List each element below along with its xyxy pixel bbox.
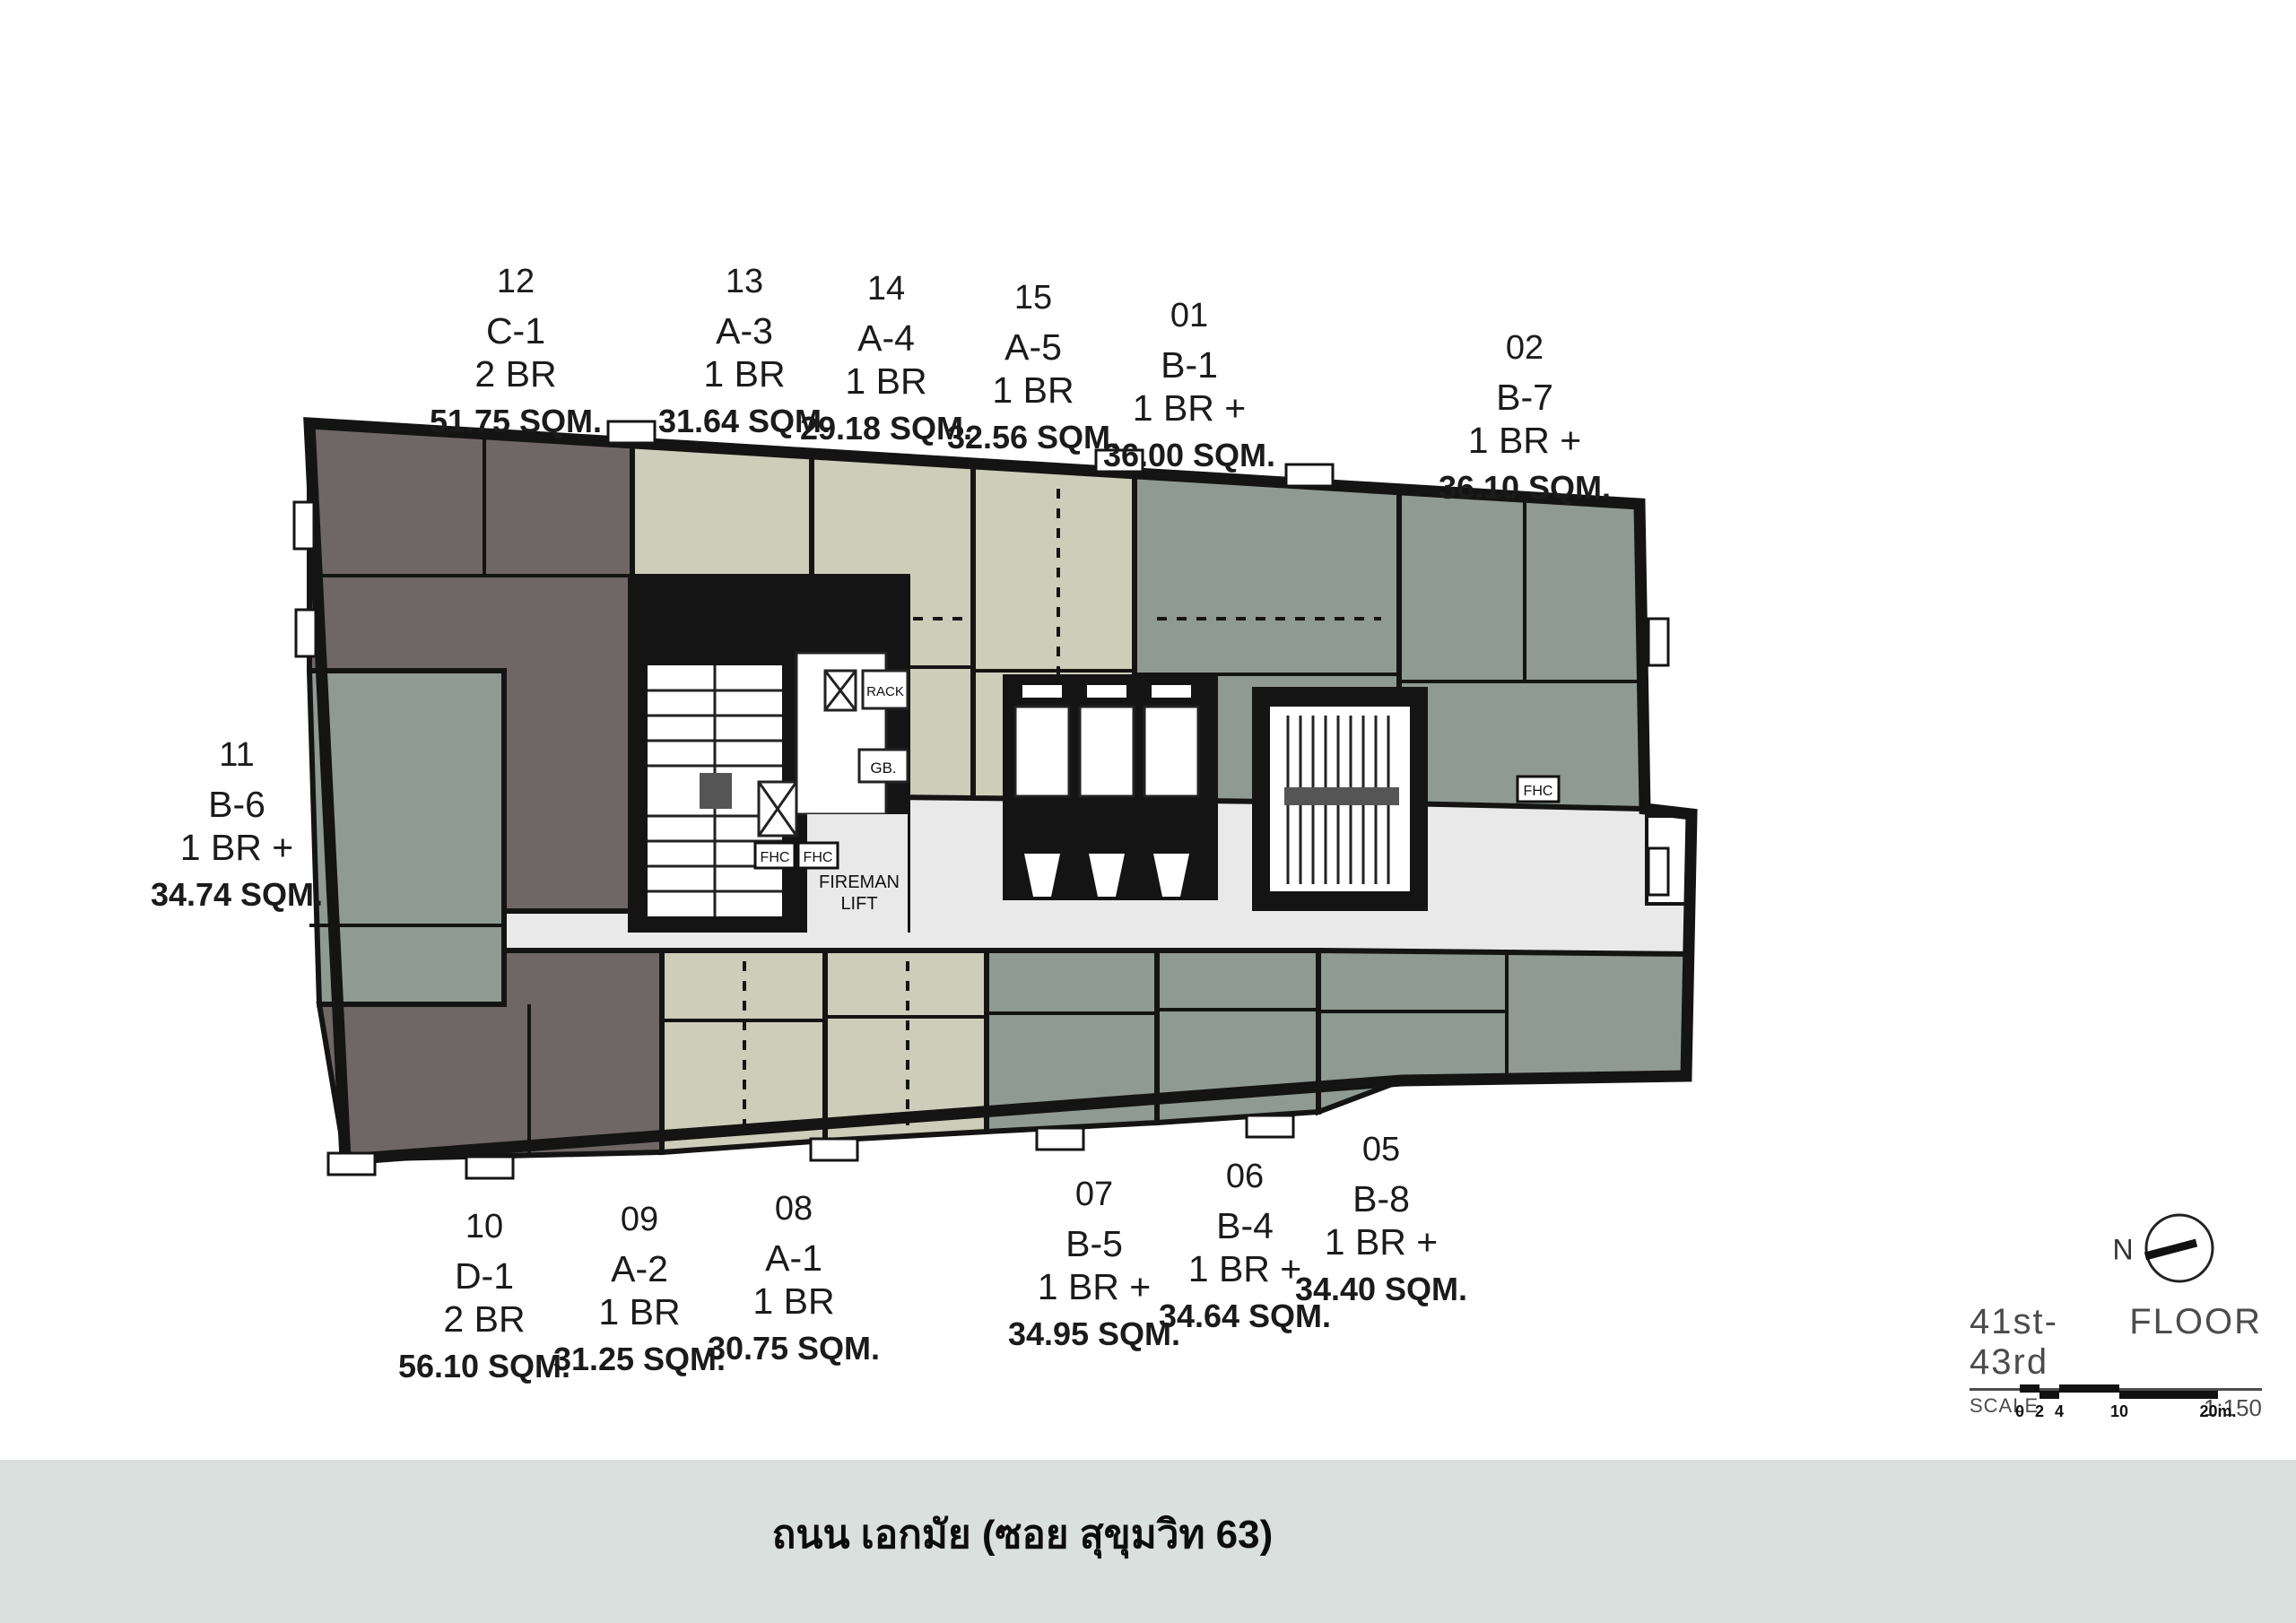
north-label: N <box>2112 1234 2133 1267</box>
floor-plan-page: RACK GB. FHC FHC FIREMAN LIFT <box>0 0 2296 1623</box>
unit-label-05: 05 B-8 1 BR + 34.40 SQM. <box>1295 1130 1467 1308</box>
scale-bar-segment <box>2119 1391 2218 1399</box>
unit-type: 1 BR <box>708 1280 880 1324</box>
unit-area-02-B7 <box>1399 490 1643 809</box>
lift-sill <box>1087 685 1126 698</box>
fhc-label: FHC <box>804 850 833 865</box>
fhc-label: FHC <box>1524 784 1553 799</box>
unit-number: 01 <box>1103 296 1275 335</box>
street-bar: ถนน เอกมัย (ซอย สุขุมวิท 63) <box>0 1460 2296 1623</box>
unit-number: 07 <box>1008 1175 1180 1214</box>
core-stair-fireman: RACK GB. FHC FHC FIREMAN LIFT <box>628 574 910 933</box>
unit-label-01: 01 B-1 1 BR + 36.00 SQM. <box>1103 296 1275 474</box>
unit-area: 32.56 SQM. <box>947 419 1119 456</box>
floor-title: 41st-43rd FLOOR <box>1970 1302 2262 1383</box>
unit-type: 1 BR + <box>151 827 323 870</box>
unit-name: A-1 <box>708 1237 880 1280</box>
unit-type: 1 BR <box>947 369 1119 412</box>
rack-label: RACK <box>866 684 904 699</box>
unit-label-10: 10 D-1 2 BR 56.10 SQM. <box>398 1207 570 1385</box>
unit-number: 05 <box>1295 1130 1467 1169</box>
unit-areas <box>309 423 1692 1159</box>
stair-1-rail <box>700 773 732 809</box>
unit-type: 1 BR + <box>1439 420 1611 463</box>
unit-type: 1 BR + <box>1295 1221 1467 1264</box>
core-lift-bank <box>1003 674 1218 900</box>
unit-area: 34.95 SQM. <box>1008 1315 1180 1353</box>
unit-area: 34.74 SQM. <box>151 876 323 914</box>
unit-area: 56.10 SQM. <box>398 1348 570 1385</box>
unit-name: A-5 <box>947 326 1119 369</box>
unit-name: A-2 <box>553 1248 726 1291</box>
floor-range: 41st-43rd <box>1970 1302 2129 1383</box>
unit-type: 1 BR <box>553 1291 726 1334</box>
unit-label-08: 08 A-1 1 BR 30.75 SQM. <box>708 1189 880 1367</box>
unit-area: 36.10 SQM. <box>1439 469 1611 507</box>
scale-tick: 4 <box>2055 1402 2064 1421</box>
scale-bar-segment <box>2039 1391 2059 1399</box>
unit-name: C-1 <box>430 310 602 353</box>
unit-name: B-6 <box>151 784 323 827</box>
unit-name: B-7 <box>1439 377 1611 420</box>
gb-label: GB. <box>870 759 896 777</box>
unit-label-09: 09 A-2 1 BR 31.25 SQM. <box>553 1200 726 1378</box>
unit-label-02: 02 B-7 1 BR + 36.10 SQM. <box>1439 328 1611 507</box>
unit-area: 30.75 SQM. <box>708 1330 880 1367</box>
unit-name: B-8 <box>1295 1178 1467 1221</box>
lift-car-icon <box>1144 707 1198 796</box>
lift-car-icon <box>1080 707 1134 796</box>
stair-2-rail <box>1284 787 1399 805</box>
unit-area: 36.00 SQM. <box>1103 437 1275 474</box>
unit-number: 10 <box>398 1207 570 1246</box>
unit-type: 1 BR + <box>1103 387 1275 430</box>
unit-number: 02 <box>1439 328 1611 368</box>
scale-bar-segment <box>2020 1384 2039 1393</box>
unit-number: 11 <box>151 735 323 775</box>
unit-name: D-1 <box>398 1255 570 1298</box>
scale-tick: 0 <box>2015 1402 2024 1421</box>
floor-word: FLOOR <box>2129 1302 2262 1383</box>
unit-number: 15 <box>947 278 1119 317</box>
lift-sill <box>1022 685 1062 698</box>
unit-area: 51.75 SQM. <box>430 403 602 440</box>
unit-type: 2 BR <box>398 1298 570 1341</box>
scale-tick: 2 <box>2035 1402 2044 1421</box>
unit-label-12: 12 C-1 2 BR 51.75 SQM. <box>430 262 602 440</box>
unit-label-07: 07 B-5 1 BR + 34.95 SQM. <box>1008 1175 1180 1353</box>
unit-name: B-5 <box>1008 1223 1180 1266</box>
scale-tick: 20m. <box>2199 1402 2236 1421</box>
unit-type: 1 BR + <box>1008 1266 1180 1309</box>
street-name: ถนน เอกมัย (ซอย สุขุมวิท 63) <box>772 1503 1274 1566</box>
fhc-label: FHC <box>761 850 790 865</box>
compass-icon <box>2145 1215 2213 1281</box>
unit-area: 31.25 SQM. <box>553 1341 726 1378</box>
unit-number: 09 <box>553 1200 726 1239</box>
lift-car-icon <box>1015 707 1069 796</box>
unit-name: B-1 <box>1103 344 1275 387</box>
floor-plan-drawing: RACK GB. FHC FHC FIREMAN LIFT <box>0 0 2296 1623</box>
lift-sill <box>1152 685 1191 698</box>
scale-tick: 10 <box>2110 1402 2128 1421</box>
unit-number: 12 <box>430 262 602 301</box>
scale-bar: 0 2 4 10 20m. <box>2020 1384 2235 1420</box>
unit-area: 34.40 SQM. <box>1295 1271 1467 1308</box>
fireman-lift-label-2: LIFT <box>840 894 877 914</box>
scale-bar-segment <box>2059 1384 2119 1393</box>
unit-label-15: 15 A-5 1 BR 32.56 SQM. <box>947 278 1119 456</box>
unit-type: 2 BR <box>430 353 602 396</box>
fireman-lift-label-1: FIREMAN <box>819 872 900 892</box>
unit-label-11: 11 B-6 1 BR + 34.74 SQM. <box>151 735 323 914</box>
unit-number: 08 <box>708 1189 880 1228</box>
